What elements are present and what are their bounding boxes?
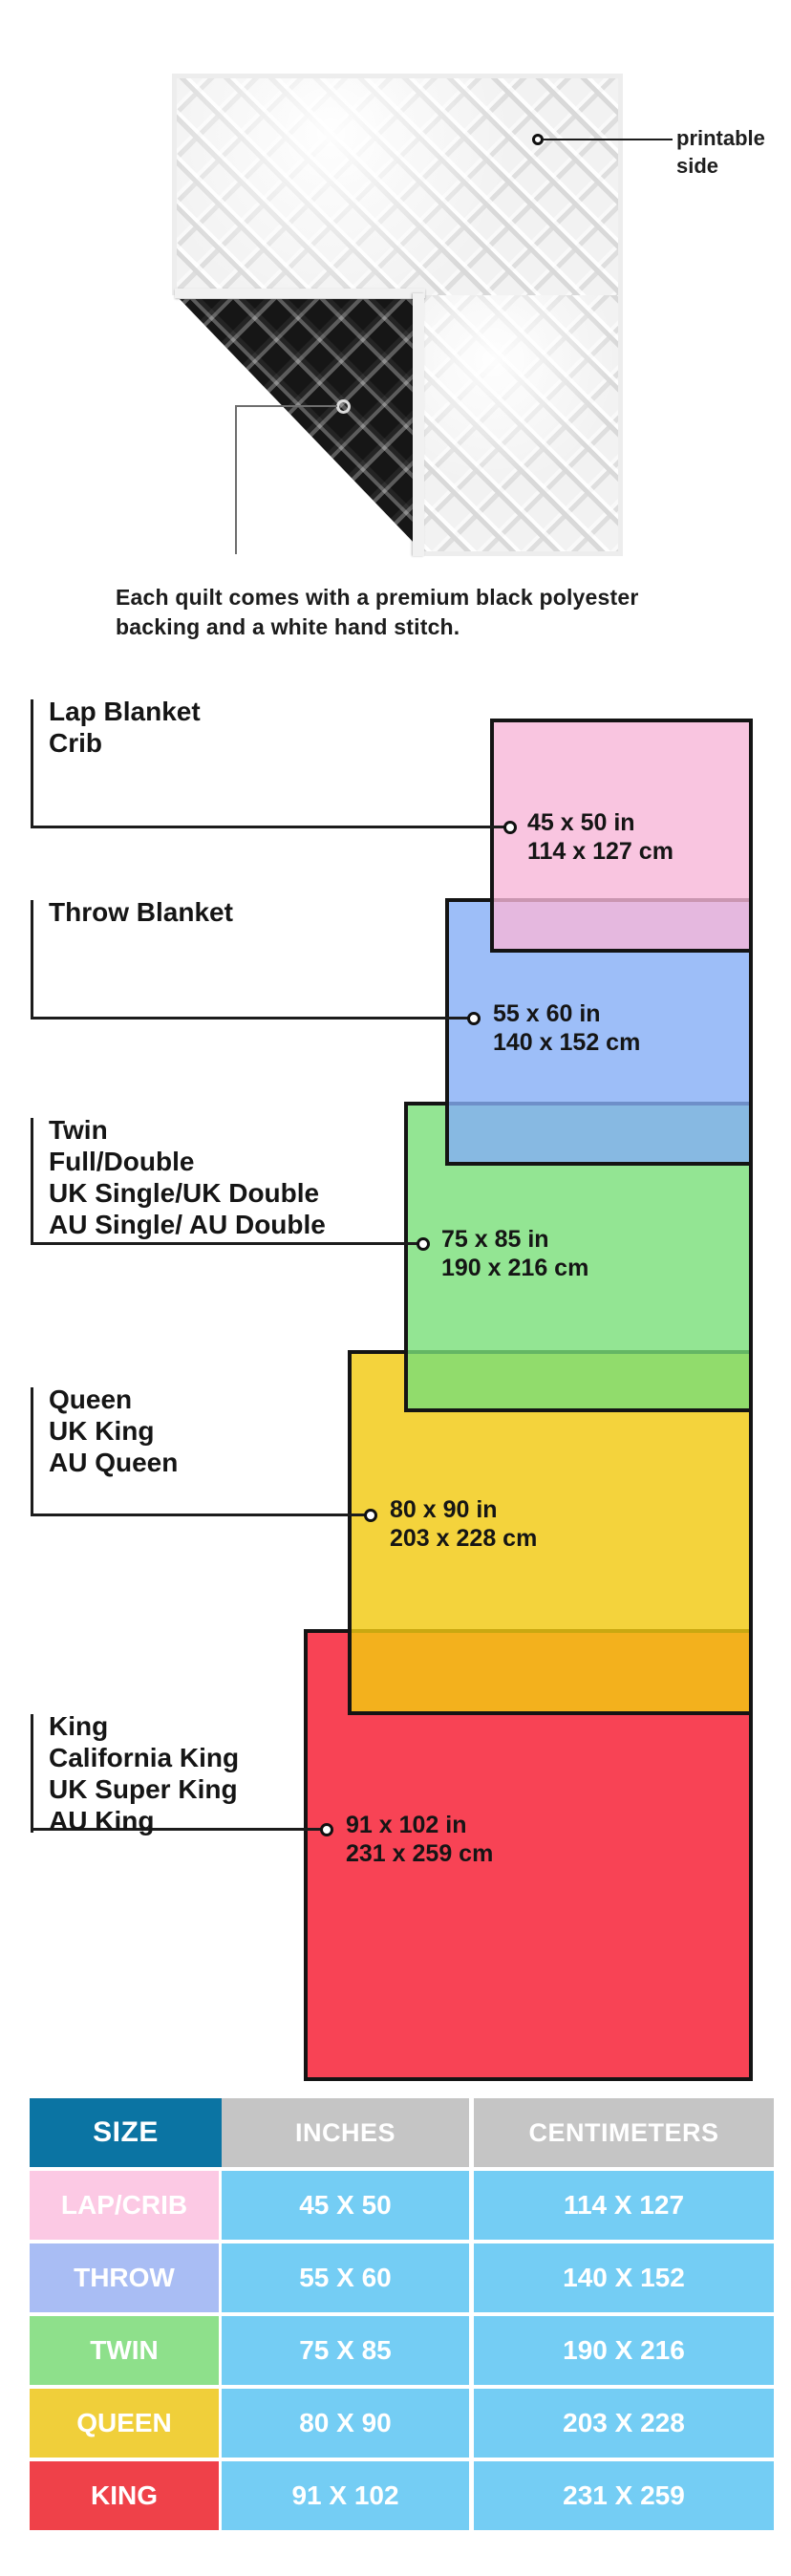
dims-lap-in: 45 x 50 in	[527, 808, 673, 837]
dims-lap: 45 x 50 in 114 x 127 cm	[527, 808, 673, 866]
table-row-throw: THROW 55 X 60 140 X 152	[30, 2243, 774, 2312]
printable-side-marker-icon	[532, 134, 544, 145]
dims-king-in: 91 x 102 in	[346, 1811, 493, 1839]
quilt-front-right	[424, 295, 623, 556]
label-king-line4: AU King	[49, 1805, 239, 1836]
header-inches: INCHES	[222, 2098, 469, 2167]
printable-side-label: printable side	[676, 124, 765, 180]
twin-marker-icon	[417, 1237, 430, 1251]
dims-king-cm: 231 x 259 cm	[346, 1839, 493, 1868]
cell-king-cm: 231 X 259	[474, 2461, 774, 2530]
label-king-line3: UK Super King	[49, 1773, 239, 1805]
dims-throw-cm: 140 x 152 cm	[493, 1028, 640, 1057]
label-queen-line3: AU Queen	[49, 1447, 178, 1478]
quilt-black-backing-fold	[180, 299, 417, 546]
dims-queen: 80 x 90 in 203 x 228 cm	[390, 1495, 537, 1553]
black-backing-leader-line-h	[235, 405, 337, 407]
quilt-photo	[172, 74, 623, 556]
label-queen-line2: UK King	[49, 1415, 178, 1447]
quilt-fold-binding-horizontal	[175, 289, 425, 298]
quilt-fold-binding-vertical	[413, 293, 424, 556]
dims-throw: 55 x 60 in 140 x 152 cm	[493, 999, 640, 1057]
cell-king-inches: 91 X 102	[222, 2461, 469, 2530]
hero-caption-line2: backing and a white hand stitch.	[116, 612, 639, 642]
table-row-twin: TWIN 75 X 85 190 X 216	[30, 2316, 774, 2385]
cell-throw-inches: 55 X 60	[222, 2243, 469, 2312]
size-table: SIZE INCHES CENTIMETERS LAP/CRIB 45 X 50…	[30, 2098, 774, 2534]
cell-twin-inches: 75 X 85	[222, 2316, 469, 2385]
label-queen: Queen UK King AU Queen	[49, 1384, 178, 1478]
hero-caption-line1: Each quilt comes with a premium black po…	[116, 583, 639, 612]
cell-throw-cm: 140 X 152	[474, 2243, 774, 2312]
cell-king-size: KING	[30, 2461, 219, 2530]
lap-marker-icon	[503, 821, 517, 834]
cell-lap-inches: 45 X 50	[222, 2171, 469, 2240]
printable-side-label-line2: side	[676, 152, 765, 180]
table-row-queen: QUEEN 80 X 90 203 X 228	[30, 2389, 774, 2458]
king-marker-icon	[320, 1823, 333, 1836]
cell-queen-cm: 203 X 228	[474, 2389, 774, 2458]
header-centimeters: CENTIMETERS	[474, 2098, 774, 2167]
label-twin-line4: AU Single/ AU Double	[49, 1209, 326, 1240]
queen-marker-icon	[364, 1509, 377, 1522]
cell-twin-cm: 190 X 216	[474, 2316, 774, 2385]
dims-throw-in: 55 x 60 in	[493, 999, 640, 1028]
cell-queen-size: QUEEN	[30, 2389, 219, 2458]
cell-queen-inches: 80 X 90	[222, 2389, 469, 2458]
table-row-king: KING 91 X 102 231 X 259	[30, 2461, 774, 2530]
dims-queen-cm: 203 x 228 cm	[390, 1524, 537, 1553]
throw-marker-icon	[467, 1012, 481, 1025]
label-queen-line1: Queen	[49, 1384, 178, 1415]
black-backing-marker-icon	[336, 399, 351, 414]
dims-lap-cm: 114 x 127 cm	[527, 837, 673, 866]
cell-twin-size: TWIN	[30, 2316, 219, 2385]
label-throw-line1: Throw Blanket	[49, 896, 233, 928]
header-size: SIZE	[30, 2098, 222, 2167]
dims-twin: 75 x 85 in 190 x 216 cm	[441, 1225, 588, 1282]
printable-side-leader-line	[544, 139, 673, 140]
label-lap-crib: Lap Blanket Crib	[49, 696, 201, 759]
label-king-line1: King	[49, 1710, 239, 1742]
label-king: King California King UK Super King AU Ki…	[49, 1710, 239, 1836]
label-twin-line2: Full/Double	[49, 1146, 326, 1177]
quilt-front-top	[172, 74, 623, 295]
label-throw: Throw Blanket	[49, 896, 233, 928]
hero-caption: Each quilt comes with a premium black po…	[116, 583, 639, 642]
quilt-size-chart: printable side Each quilt comes with a p…	[0, 0, 791, 2576]
table-header-row: SIZE INCHES CENTIMETERS	[30, 2098, 774, 2167]
dims-twin-cm: 190 x 216 cm	[441, 1254, 588, 1282]
label-twin-line1: Twin	[49, 1114, 326, 1146]
cell-throw-size: THROW	[30, 2243, 219, 2312]
cell-lap-cm: 114 X 127	[474, 2171, 774, 2240]
label-king-line2: California King	[49, 1742, 239, 1773]
table-row-lap: LAP/CRIB 45 X 50 114 X 127	[30, 2171, 774, 2240]
black-backing-leader-line-v	[235, 405, 237, 554]
label-twin: Twin Full/Double UK Single/UK Double AU …	[49, 1114, 326, 1240]
dims-queen-in: 80 x 90 in	[390, 1495, 537, 1524]
label-lap-line1: Lap Blanket	[49, 696, 201, 727]
cell-lap-size: LAP/CRIB	[30, 2171, 219, 2240]
label-twin-line3: UK Single/UK Double	[49, 1177, 326, 1209]
printable-side-label-line1: printable	[676, 124, 765, 152]
dims-king: 91 x 102 in 231 x 259 cm	[346, 1811, 493, 1868]
dims-twin-in: 75 x 85 in	[441, 1225, 588, 1254]
label-lap-line2: Crib	[49, 727, 201, 759]
